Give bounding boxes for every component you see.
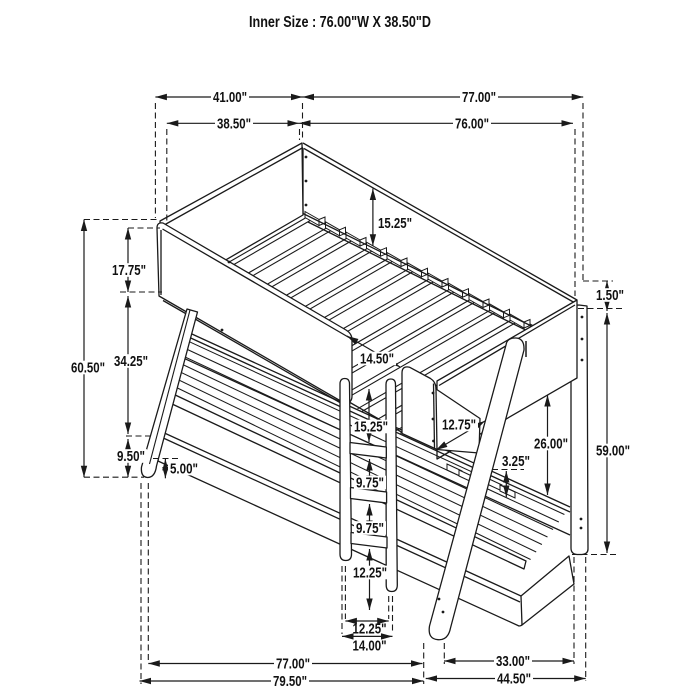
- svg-text:1.50": 1.50": [596, 288, 624, 304]
- svg-text:59.00": 59.00": [596, 444, 630, 460]
- svg-text:15.25": 15.25": [354, 420, 388, 436]
- svg-text:12.25": 12.25": [353, 566, 387, 582]
- svg-text:34.25": 34.25": [114, 354, 148, 370]
- svg-text:14.00": 14.00": [353, 639, 387, 655]
- svg-text:79.50": 79.50": [273, 674, 307, 690]
- svg-text:44.50": 44.50": [497, 672, 531, 688]
- svg-text:5.00": 5.00": [170, 462, 198, 478]
- svg-text:60.50": 60.50": [71, 361, 105, 377]
- svg-text:9.50": 9.50": [117, 449, 145, 465]
- svg-text:14.50": 14.50": [360, 352, 394, 368]
- svg-text:77.00": 77.00": [462, 90, 496, 106]
- svg-text:41.00": 41.00": [213, 90, 247, 106]
- svg-text:9.75": 9.75": [356, 476, 384, 492]
- svg-text:12.75": 12.75": [442, 418, 476, 434]
- svg-text:38.50": 38.50": [217, 117, 251, 133]
- svg-text:77.00": 77.00": [276, 657, 310, 673]
- svg-text:33.00": 33.00": [496, 654, 530, 670]
- svg-text:3.25": 3.25": [502, 454, 530, 470]
- svg-text:9.75": 9.75": [356, 521, 384, 537]
- svg-text:12.25": 12.25": [353, 622, 387, 638]
- svg-text:17.75": 17.75": [112, 263, 146, 279]
- svg-text:26.00": 26.00": [534, 437, 568, 453]
- svg-text:15.25": 15.25": [378, 216, 412, 232]
- svg-text:76.00": 76.00": [455, 117, 489, 133]
- svg-text:Inner Size : 76.00"W X 38.50": Inner Size : 76.00"W X 38.50"D: [249, 14, 431, 31]
